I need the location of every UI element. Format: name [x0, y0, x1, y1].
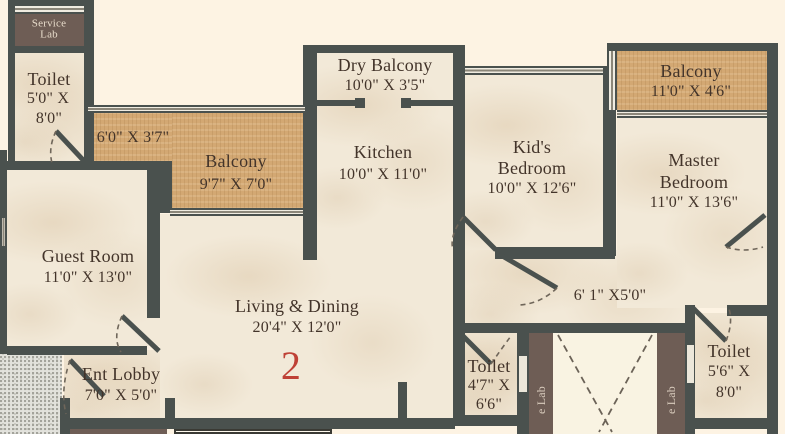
living-dining-dims: 20'4" X 12'0" — [253, 320, 342, 336]
kitchen-label: Kitchen — [354, 143, 412, 161]
ent-lobby-label: Ent Lobby — [82, 365, 160, 383]
toilet-right-dims: 8'0" — [716, 385, 742, 401]
kitchen-dims: 10'0" X 11'0" — [339, 167, 427, 183]
master-bedroom-dims: 11'0" X 13'6" — [650, 195, 738, 211]
toilet-top-label: Toilet — [28, 70, 71, 88]
toilet-top-dims: 8'0" — [36, 111, 62, 127]
duct-left-label: e Lab — [535, 386, 547, 414]
floor-plan: Service Lab Toilet 5'0" X 8'0" 6'0" X 3'… — [0, 0, 785, 434]
balcony-left-label: Balcony — [205, 152, 266, 170]
kids-bedroom-dims: 10'0" X 12'6" — [488, 181, 577, 197]
master-bedroom-label: Bedroom — [660, 173, 728, 191]
toilet-top-dims: 5'0" X — [27, 91, 69, 107]
toilet-mid-label: Toilet — [468, 357, 511, 375]
duct-right-label: e Lab — [665, 386, 677, 414]
kids-bedroom-label: Kid's — [513, 138, 551, 156]
toilet-mid-dims: 4'7" X — [468, 378, 510, 394]
kids-bedroom-label: Bedroom — [498, 159, 566, 177]
toilet-right-dims: 5'6" X — [708, 364, 750, 380]
dry-balcony-label: Dry Balcony — [338, 56, 433, 74]
master-bedroom-label: Master — [668, 151, 719, 169]
guest-room-label: Guest Room — [42, 247, 135, 265]
guest-room-dims: 11'0" X 13'0" — [44, 270, 132, 286]
shaft-cross-marks — [558, 335, 652, 432]
ent-lobby-dims: 7'0" X 5'0" — [85, 388, 158, 404]
balcony-left-dims: 9'7" X 7'0" — [200, 177, 273, 193]
passage-dims: 6' 1" X5'0" — [574, 288, 647, 304]
balcony-right-label: Balcony — [660, 62, 721, 80]
balcony-passage-dims: 6'0" X 3'7" — [97, 130, 170, 146]
toilet-mid-dims: 6'6" — [476, 397, 502, 413]
toilet-right-label: Toilet — [708, 342, 751, 360]
dry-balcony-dims: 10'0" X 3'5" — [345, 78, 426, 94]
balcony-right-dims: 11'0" X 4'6" — [651, 84, 731, 100]
unit-number: 2 — [281, 346, 301, 386]
service-lab-label: Lab — [40, 30, 58, 41]
living-dining-label: Living & Dining — [235, 297, 359, 315]
